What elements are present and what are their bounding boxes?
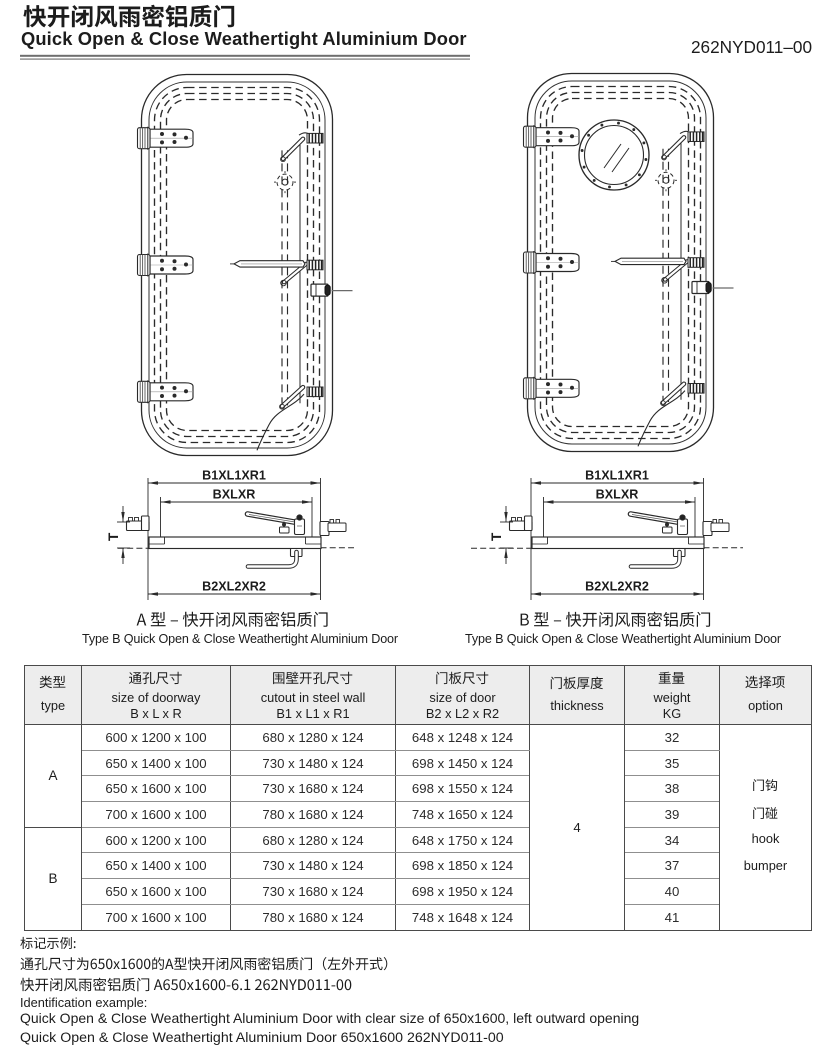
- svg-text:B1XL1XR1: B1XL1XR1: [202, 469, 266, 483]
- svg-text:T: T: [106, 532, 121, 541]
- svg-text:B2XL2XR2: B2XL2XR2: [202, 580, 266, 594]
- svg-text:BXLXR: BXLXR: [596, 488, 639, 502]
- svg-text:BXLXR: BXLXR: [213, 488, 256, 502]
- svg-text:B1XL1XR1: B1XL1XR1: [585, 469, 649, 483]
- svg-text:B2XL2XR2: B2XL2XR2: [585, 580, 649, 594]
- svg-text:T: T: [489, 532, 504, 541]
